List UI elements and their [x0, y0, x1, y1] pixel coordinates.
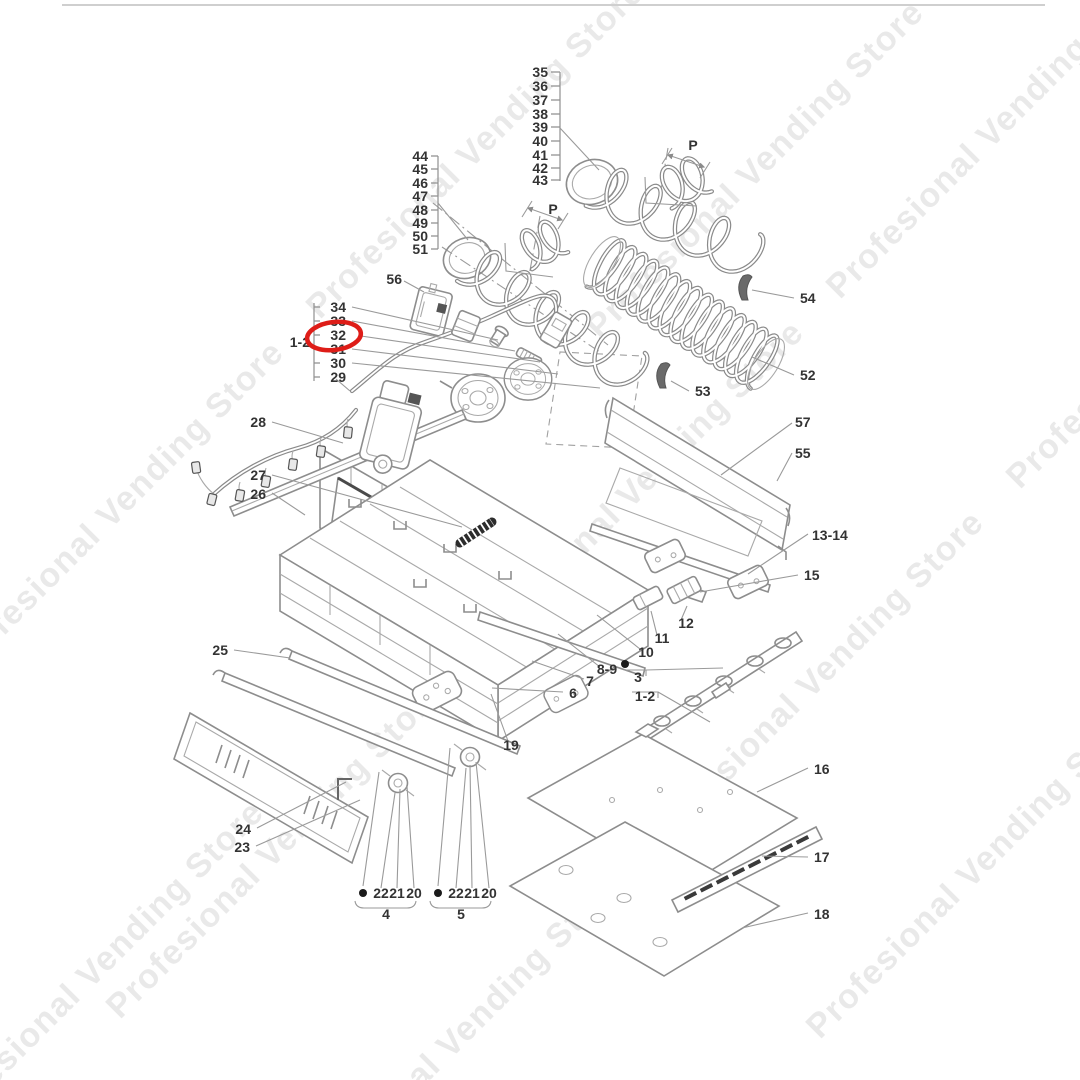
part-label-4: 4 — [382, 906, 390, 922]
latch-parts — [632, 576, 702, 611]
gear-motor — [356, 379, 427, 479]
part-label-7: 7 — [586, 673, 594, 689]
part-label-18: 18 — [814, 906, 830, 922]
part-label-23: 23 — [234, 839, 250, 855]
part-label-53: 53 — [695, 383, 711, 399]
watermark-text: Profesional Vending Store — [579, 0, 932, 346]
part-label-56: 56 — [386, 271, 402, 287]
part-label-26: 26 — [250, 486, 266, 502]
spring-clip-54 — [739, 275, 752, 300]
part-label-17: 17 — [814, 849, 830, 865]
part-label-24: 24 — [235, 821, 251, 837]
spring-clip-53 — [657, 363, 670, 388]
part-label-57: 57 — [795, 414, 811, 430]
part-label-51: 51 — [412, 241, 428, 257]
part-label-12: 12 — [678, 615, 694, 631]
part-label-20: 20 — [481, 885, 497, 901]
part-label-8-9: 8-9 — [597, 661, 617, 677]
watermark-text: Profesional Vending Store — [999, 143, 1080, 496]
part-label-5: 5 — [457, 906, 465, 922]
part-label-27: 27 — [250, 467, 266, 483]
part-label-1-2: 1-2 — [635, 688, 655, 704]
part-label-21: 21 — [389, 885, 405, 901]
part-label-6: 6 — [569, 685, 577, 701]
part-label-52: 52 — [800, 367, 816, 383]
part-label-19: 19 — [503, 737, 519, 753]
pulley-left — [382, 770, 414, 796]
exploded-parts-diagram: Profesional Vending StoreProfesional Ven… — [0, 0, 1080, 1080]
part-label-25: 25 — [212, 642, 228, 658]
part-label-16: 16 — [814, 761, 830, 777]
part-label-13-14: 13-14 — [812, 527, 848, 543]
part-label-P: P — [688, 137, 697, 153]
part-label-10: 10 — [638, 644, 654, 660]
part-label-11: 11 — [655, 630, 670, 646]
part-label-20: 20 — [406, 885, 422, 901]
part-label-22: 22 — [373, 885, 389, 901]
part-label-3: 3 — [634, 669, 642, 685]
part-label-28: 28 — [250, 414, 266, 430]
part-label-P: P — [548, 201, 557, 217]
cable-mid-connector — [451, 310, 481, 342]
parts-diagram-page: Profesional Vending StoreProfesional Ven… — [0, 0, 1080, 1080]
part-label-15: 15 — [804, 567, 820, 583]
watermark-text: Profesional Vending Store — [0, 793, 271, 1080]
part-label-22: 22 — [448, 885, 464, 901]
part-label-29: 29 — [330, 369, 346, 385]
part-label-54: 54 — [800, 290, 816, 306]
part-label-43: 43 — [532, 172, 548, 188]
part-label-55: 55 — [795, 445, 811, 461]
watermark-text: Profesional Vending Store — [799, 693, 1080, 1046]
part-label-21: 21 — [464, 885, 480, 901]
bolt — [487, 324, 510, 349]
